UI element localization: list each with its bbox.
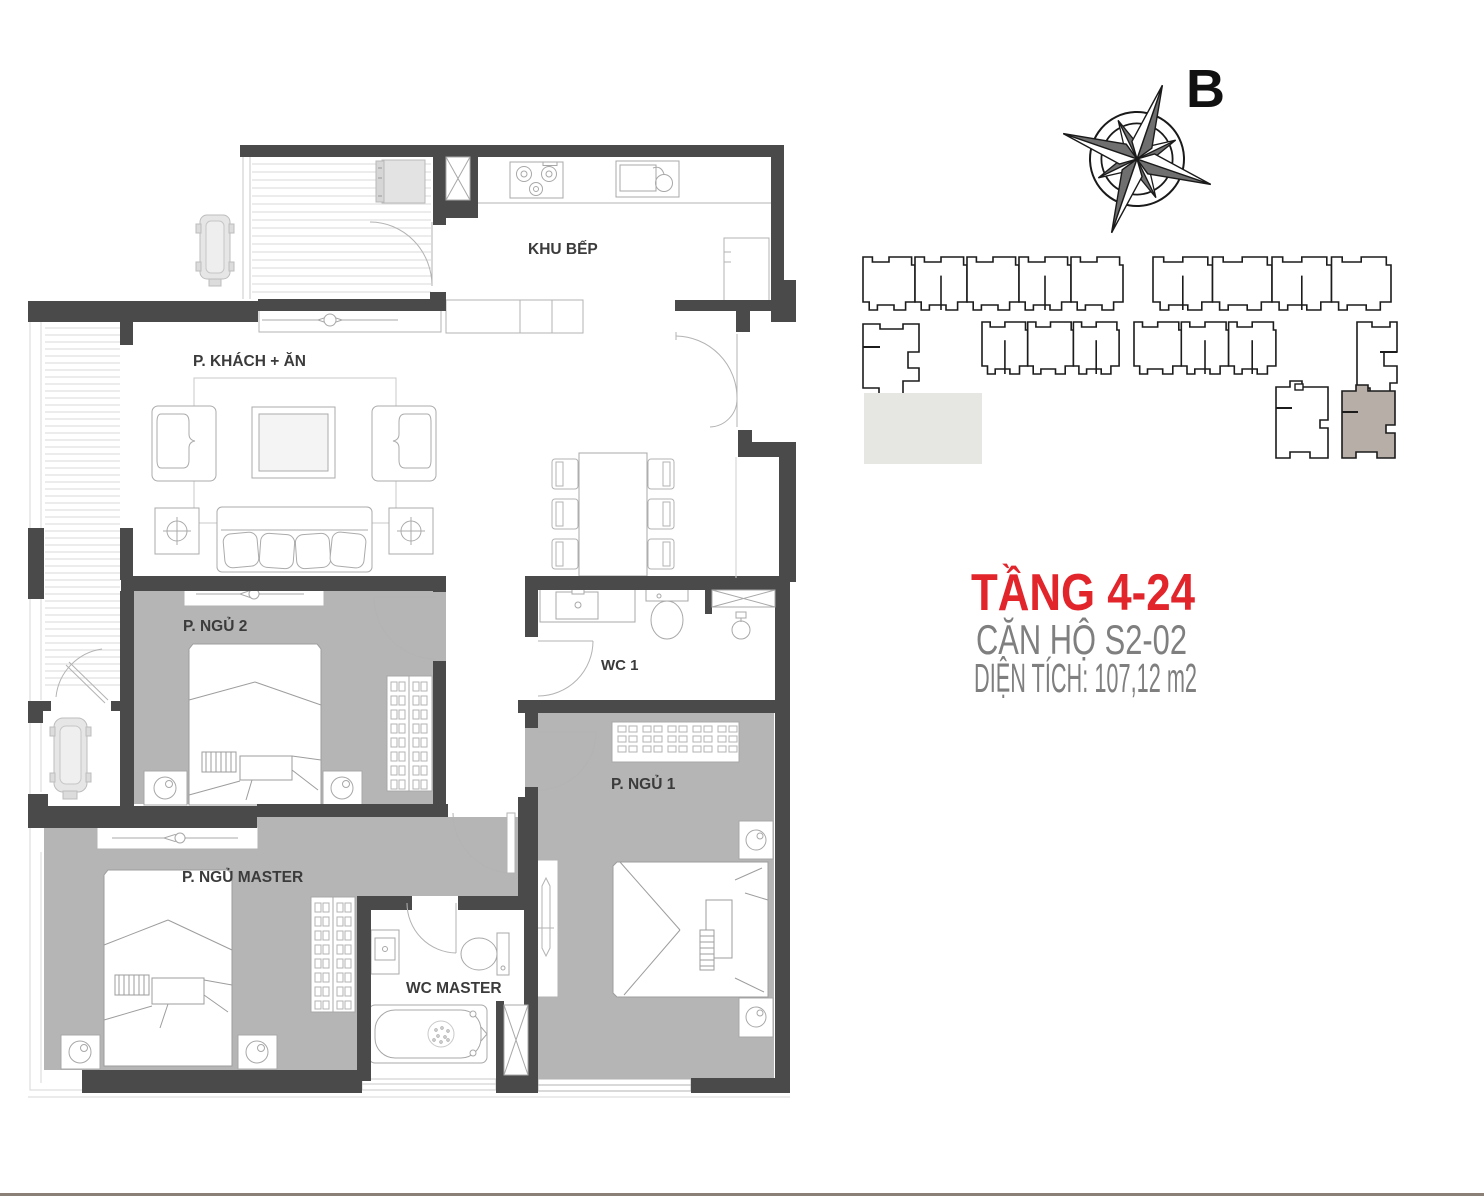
svg-text:P. NGỦ MASTER: P. NGỦ MASTER bbox=[182, 868, 303, 886]
svg-text:B: B bbox=[1186, 59, 1225, 119]
svg-text:KHU BẾP: KHU BẾP bbox=[528, 241, 598, 258]
svg-text:P. KHÁCH + ĂN: P. KHÁCH + ĂN bbox=[193, 353, 306, 370]
svg-text:P. NGỦ 1: P. NGỦ 1 bbox=[611, 775, 676, 793]
svg-text:TẦNG 4-24: TẦNG 4-24 bbox=[971, 563, 1195, 622]
svg-text:WC 1: WC 1 bbox=[601, 657, 639, 674]
svg-text:P. NGỦ 2: P. NGỦ 2 bbox=[183, 617, 247, 635]
svg-text:WC MASTER: WC MASTER bbox=[406, 980, 502, 997]
svg-text:DIỆN TÍCH: 107,12 m2: DIỆN TÍCH: 107,12 m2 bbox=[974, 655, 1197, 701]
